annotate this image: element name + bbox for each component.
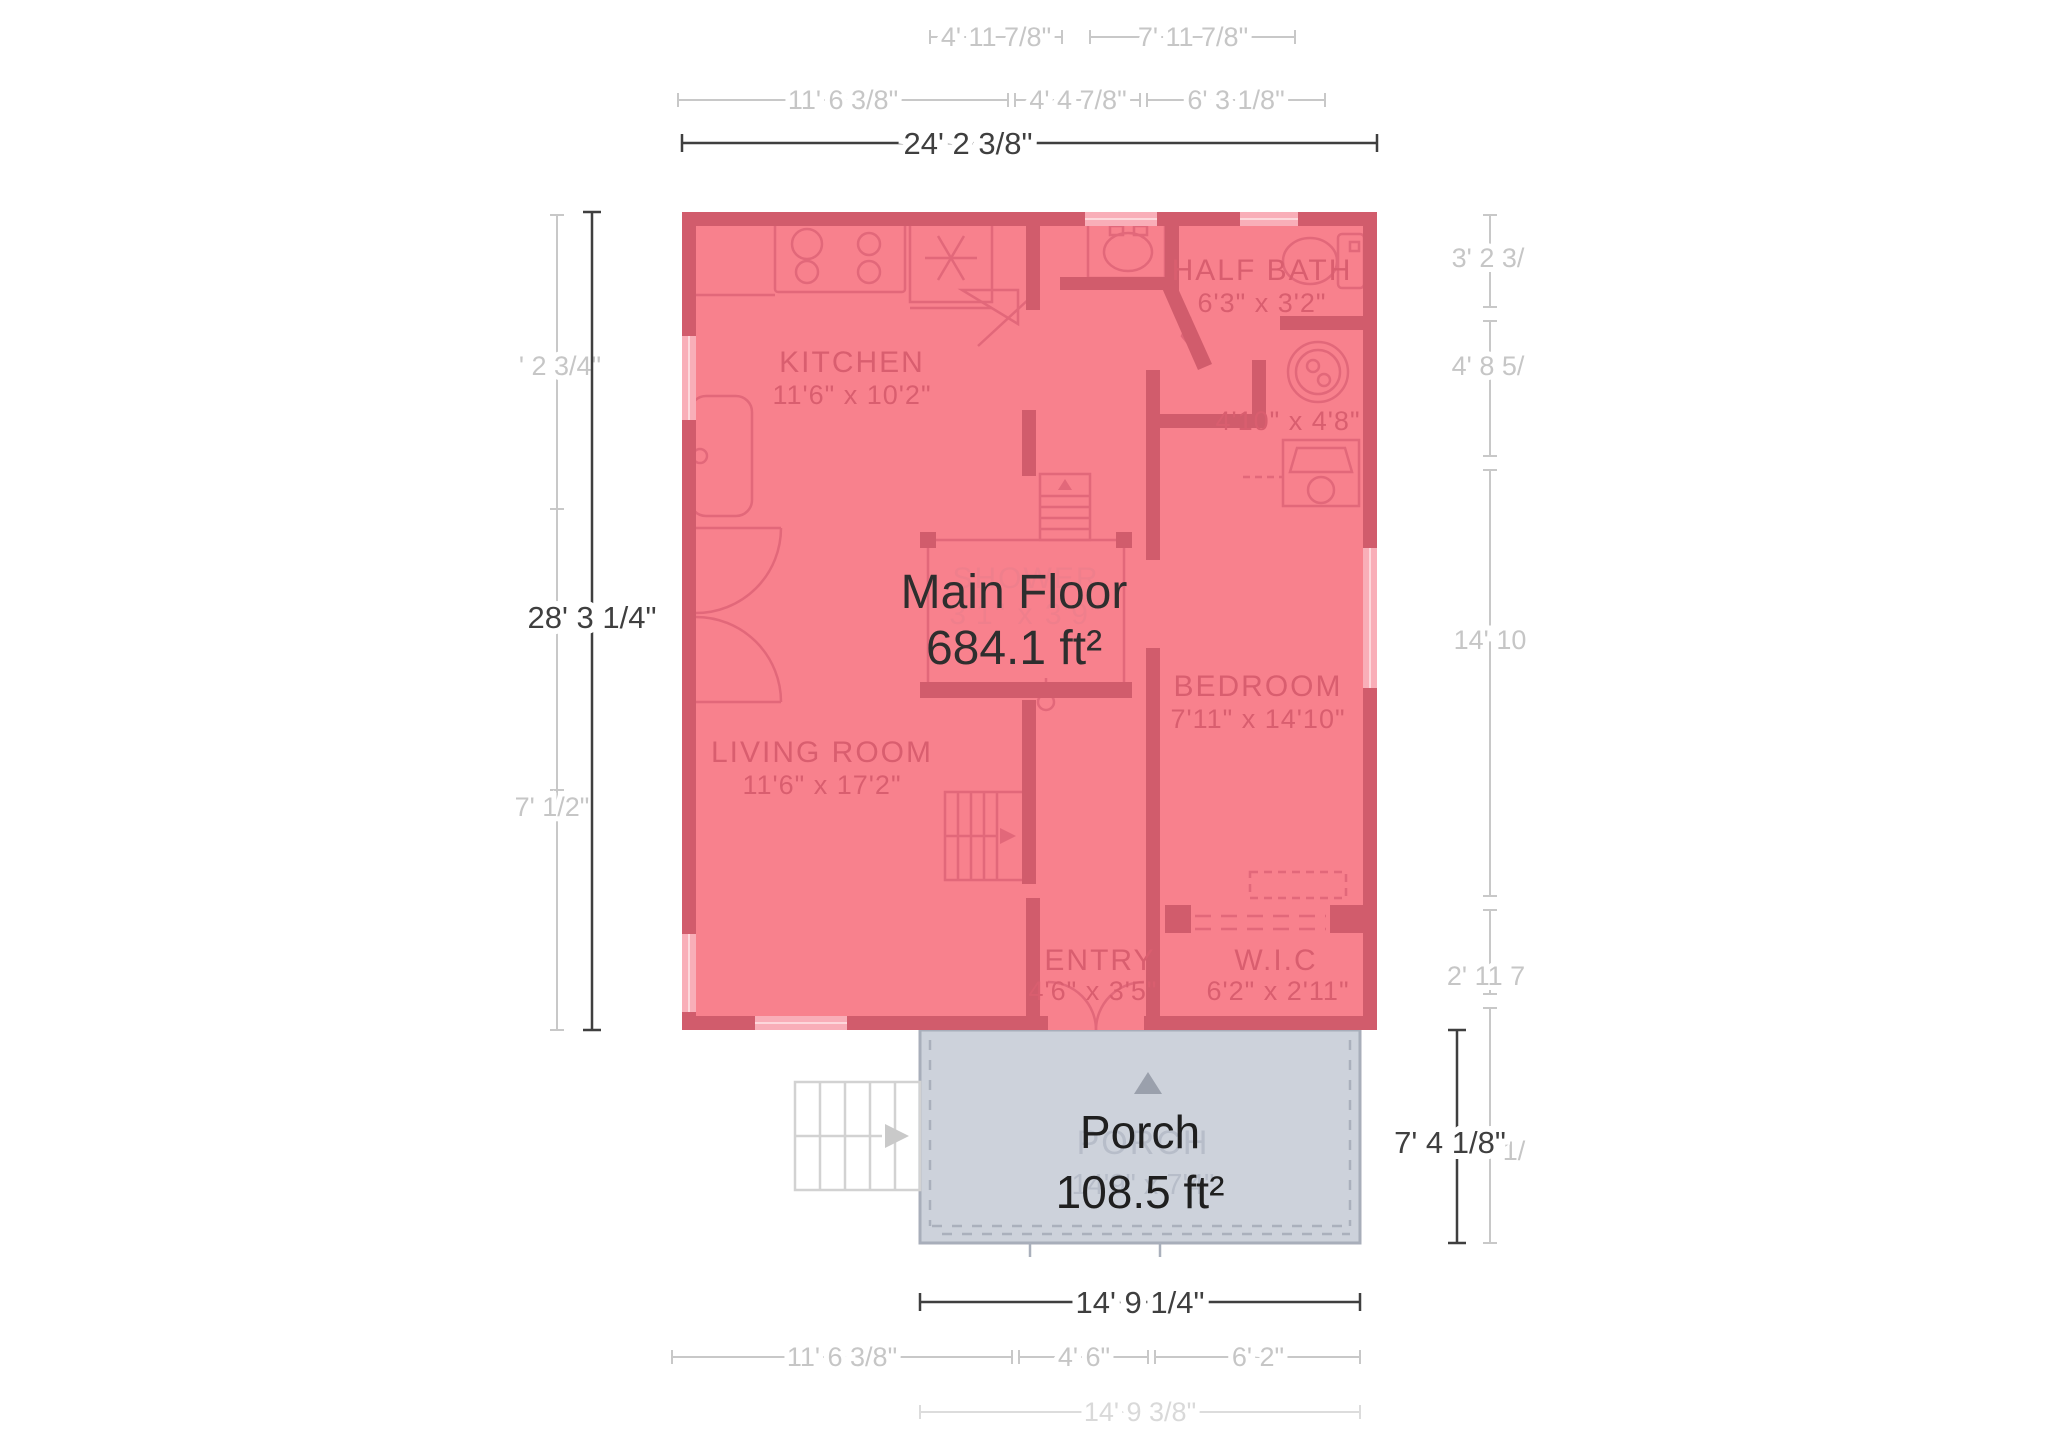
main-floor: SHOWER 3'1" x 3'9" xyxy=(682,212,1377,1030)
floorplan-canvas: 4' 11 7/8" 7' 11 7/8" 11' 6 3/8" 4' 4 7/… xyxy=(0,0,2048,1449)
room-dims-half-bath: 6'3" x 3'2" xyxy=(1197,288,1326,318)
room-label-entry: ENTRY xyxy=(1044,944,1155,977)
dimension-lines-bottom: 14' 9 1/4" 11' 6 3/8" 4' 6" 6' 2" 14' 9 … xyxy=(672,1285,1360,1427)
wall-segment xyxy=(1022,410,1036,476)
room-label-bedroom: BEDROOM xyxy=(1173,670,1342,703)
dim-label: 7' 11 7/8" xyxy=(1138,22,1248,52)
wall-segment xyxy=(920,682,1132,698)
wall-segment xyxy=(1026,898,1040,1030)
stairs-direction-arrow-icon xyxy=(885,1124,909,1148)
floor-area: 684.1 ft² xyxy=(926,622,1102,675)
dim-label: 6' 2" xyxy=(1232,1342,1284,1372)
exterior-stairs xyxy=(795,1082,920,1190)
wall-post xyxy=(920,532,936,548)
floor-label: Main Floor xyxy=(901,566,1128,619)
wall-segment xyxy=(1144,1016,1377,1030)
dim-label: 7' 1/2" xyxy=(515,792,590,822)
dim-label: 2' 11 7 xyxy=(1447,961,1525,991)
wall-segment xyxy=(1330,905,1363,933)
dim-label: 11' 6 3/8" xyxy=(787,1342,897,1372)
wall-segment xyxy=(682,212,696,1030)
room-label-kitchen: KITCHEN xyxy=(779,346,925,379)
room-label-living-room: LIVING ROOM xyxy=(711,736,933,769)
dim-label: 4' 4 7/8" xyxy=(1029,85,1126,115)
dimension-lines-right: 3' 2 3/ 4' 8 5/ 14' 10 2' 11 7 1/ 7' 4 1… xyxy=(1394,215,1526,1243)
dim-label: 1/ xyxy=(1503,1136,1526,1166)
floorplan-page: 4' 11 7/8" 7' 11 7/8" 11' 6 3/8" 4' 4 7/… xyxy=(0,0,2048,1449)
dim-label-porch-width: 14' 9 1/4" xyxy=(1076,1285,1205,1320)
dim-label-porch-height: 7' 4 1/8" xyxy=(1394,1125,1506,1160)
room-dims-laundry: 4'10" x 4'8" xyxy=(1215,406,1360,436)
room-label-half-bath: HALF BATH xyxy=(1172,254,1353,287)
dim-label: 4' 11 7/8" xyxy=(941,22,1051,52)
dim-label-total-height: 28' 3 1/4" xyxy=(528,600,657,635)
wall-segment xyxy=(1026,212,1040,310)
wall-segment xyxy=(682,1016,1048,1030)
dimension-lines-top: 4' 11 7/8" 7' 11 7/8" 11' 6 3/8" 4' 4 7/… xyxy=(678,22,1377,161)
room-dims-wic: 6'2" x 2'11" xyxy=(1206,976,1349,1006)
room-dims-entry: 4'6" x 3'5" xyxy=(1028,976,1157,1006)
dim-label: ' 2 3/4" xyxy=(519,351,601,381)
wall-segment xyxy=(1022,700,1036,884)
dim-label: 14' 9 3/8" xyxy=(1084,1397,1196,1427)
dim-label: 6' 3 1/8" xyxy=(1187,85,1284,115)
porch-label: Porch xyxy=(1080,1106,1200,1158)
wall-segment xyxy=(1280,316,1377,330)
wall-segment xyxy=(1146,370,1160,560)
dimension-lines-left: ' 2 3/4" 7' 1/2" 28' 3 1/4" xyxy=(515,212,657,1030)
dim-label: 4' 6" xyxy=(1058,1342,1110,1372)
room-dims-bedroom: 7'11" x 14'10" xyxy=(1170,704,1345,734)
wall-segment xyxy=(1060,277,1179,290)
dim-label-total-width: 24' 2 3/8" xyxy=(904,126,1033,161)
wall-segment xyxy=(1165,905,1191,933)
porch: PORCH 14'9" x 7'4" Porch 108.5 ft² xyxy=(920,1030,1360,1257)
room-dims-kitchen: 11'6" x 10'2" xyxy=(772,380,931,410)
porch-area: 108.5 ft² xyxy=(1056,1166,1225,1218)
dim-label: 3' 2 3/ xyxy=(1452,243,1525,273)
dim-label: 4' 8 5/ xyxy=(1452,351,1525,381)
room-label-wic: W.I.C xyxy=(1234,944,1317,977)
dim-label: 11' 6 3/8" xyxy=(788,85,898,115)
room-dims-living-room: 11'6" x 17'2" xyxy=(742,770,901,800)
wall-post xyxy=(1116,532,1132,548)
dim-label: 14' 10 xyxy=(1454,625,1527,655)
